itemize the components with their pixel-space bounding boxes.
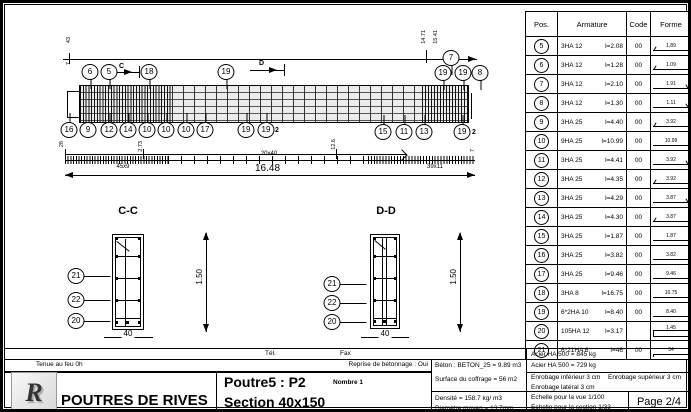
forme-label: 1.09 bbox=[665, 63, 677, 68]
bar-code bbox=[627, 322, 651, 340]
stirrup-outline bbox=[373, 237, 397, 326]
rebar-dot bbox=[394, 255, 397, 258]
bar-length: l=2.10 bbox=[605, 81, 623, 88]
bar-callout: 19 bbox=[238, 122, 255, 138]
forme-shape: 3.92 bbox=[652, 173, 690, 186]
bar-spec: 105HA 12 bbox=[561, 328, 590, 335]
forme-shape: 1.45 bbox=[652, 325, 690, 338]
rebar-dot bbox=[394, 237, 397, 240]
pos-badge: 16 bbox=[534, 248, 549, 263]
bar-callout: 18 bbox=[141, 64, 158, 80]
annotation-label: C bbox=[119, 63, 124, 70]
bar-code: 00 bbox=[627, 75, 651, 93]
logo-letter: R bbox=[25, 378, 42, 408]
forme-label: 3.87 bbox=[665, 215, 677, 220]
bar-callout: 16 bbox=[61, 122, 78, 138]
forme-label: 1.11 bbox=[665, 101, 676, 106]
annotation-label: D bbox=[259, 60, 264, 67]
table-row: 16 3HA 25 l=3.82 00 3.82 bbox=[526, 246, 691, 265]
forme-label: 1.91 bbox=[665, 82, 677, 87]
enrobage-superieur: Enrobage supérieur 3 cm bbox=[608, 375, 681, 382]
pos-badge: 8 bbox=[534, 96, 549, 111]
bar-callout: 19 bbox=[455, 65, 472, 81]
forme-label: 3.82 bbox=[665, 253, 677, 258]
line bbox=[216, 371, 217, 412]
bar-code: 00 bbox=[627, 94, 651, 112]
bar-callout: 5 bbox=[101, 64, 118, 80]
line bbox=[431, 359, 432, 412]
width-dim-label: 40 bbox=[379, 330, 392, 338]
table-row: 10 9HA 25 l=10.99 00 10.99 bbox=[526, 132, 691, 151]
forme-shape: 8.40 bbox=[652, 306, 690, 319]
bar-code: 00 bbox=[627, 132, 651, 150]
height-dim-line bbox=[460, 233, 461, 332]
forme-label: 9.46 bbox=[665, 272, 677, 277]
bar-callout: 10 bbox=[158, 122, 175, 138]
pos-badge: 5 bbox=[534, 39, 549, 54]
forme-label: 1.45 bbox=[665, 326, 677, 331]
forme-shape: 3.92 bbox=[652, 116, 690, 129]
line bbox=[284, 64, 285, 76]
bar-length: l=3.17 bbox=[605, 328, 623, 335]
stirrup-leg bbox=[116, 256, 140, 257]
bar-spec: 3HA 25 bbox=[561, 214, 582, 221]
bar-length: l=8.40 bbox=[605, 309, 623, 316]
bar-callout: 13 bbox=[416, 124, 433, 140]
dim-label: 7 bbox=[67, 62, 73, 65]
pos-badge: 6 bbox=[534, 58, 549, 73]
bar-code: 00 bbox=[627, 170, 651, 188]
forme-shape: 3.87 bbox=[652, 192, 690, 205]
bar-code: 00 bbox=[627, 208, 651, 226]
total-length-label: 16.48 bbox=[255, 164, 280, 174]
cut-arrow-icon bbox=[124, 69, 132, 75]
pos-badge: 13 bbox=[534, 191, 549, 206]
bar-callout: 19 bbox=[435, 65, 452, 81]
table-row: 12 3HA 25 l=4.35 00 3.92 bbox=[526, 170, 691, 189]
table-header: Pos. Armature Code Forme bbox=[526, 12, 691, 37]
forme-label: 3.92 bbox=[665, 158, 677, 163]
line bbox=[67, 91, 81, 92]
bar-spec: 3HA 12 bbox=[561, 43, 582, 50]
bar-callout: 19 bbox=[454, 124, 471, 140]
table-row: 15 3HA 25 l=1.87 00 1.87 bbox=[526, 227, 691, 246]
pos-badge: 18 bbox=[534, 286, 549, 301]
beton-info: Béton : BETON_25 = 9.89 m3 bbox=[435, 363, 521, 370]
dim-label: 43 bbox=[67, 37, 73, 43]
dim-label: 15.41 bbox=[434, 30, 440, 44]
pos-badge: 9 bbox=[534, 115, 549, 130]
bar-spec: 3HA 25 bbox=[561, 119, 582, 126]
bar-length: l=4.40 bbox=[605, 119, 623, 126]
table-row: 13 3HA 25 l=4.29 00 3.87 bbox=[526, 189, 691, 208]
forme-label: 16.75 bbox=[664, 291, 679, 296]
bar-callout: 19 bbox=[258, 122, 275, 138]
line bbox=[67, 91, 68, 118]
bar-length: l=1.30 bbox=[605, 100, 623, 107]
pos-badge: 20 bbox=[534, 324, 549, 339]
forme-shape: 1.87 bbox=[652, 230, 690, 243]
bar-line bbox=[382, 238, 383, 326]
bar-length: l=3.82 bbox=[605, 252, 623, 259]
rebar-dot bbox=[126, 321, 129, 324]
rebar-dot bbox=[394, 299, 397, 302]
pos-badge: 7 bbox=[534, 77, 549, 92]
bar-length: l=16.75 bbox=[601, 290, 623, 297]
table-row: 8 3HA 12 l=1.30 00 1.11 bbox=[526, 94, 691, 113]
rebar-dot bbox=[138, 299, 141, 302]
forme-label: 3.92 bbox=[665, 177, 677, 182]
bar-callout: 22 bbox=[324, 295, 341, 311]
spacing-ticks-right bbox=[368, 156, 475, 164]
forme-label: 3.92 bbox=[665, 120, 677, 125]
acier-info-2: Acier HA 500 = 729 kg bbox=[531, 363, 596, 370]
rebar-dot bbox=[115, 237, 118, 240]
line bbox=[63, 59, 477, 60]
enrobage-inferieur: Enrobage inférieur 3 cm bbox=[531, 375, 600, 382]
forme-shape: 1.11 bbox=[652, 97, 690, 110]
section-outline bbox=[112, 234, 144, 330]
rebar-dot bbox=[115, 321, 118, 324]
dim-label: 7 bbox=[471, 149, 477, 152]
line bbox=[250, 70, 284, 71]
tel-label: Tél. bbox=[265, 351, 276, 358]
line bbox=[65, 175, 475, 176]
rebar-dot bbox=[373, 255, 376, 258]
stirrup-hatch-dense-left bbox=[80, 86, 172, 122]
rebar-dot bbox=[373, 320, 376, 323]
line bbox=[5, 371, 431, 373]
bar-code: 00 bbox=[627, 56, 651, 74]
bar-length: l=10.99 bbox=[601, 138, 623, 145]
rebar-schedule-table: Pos. Armature Code Forme 5 3HA 12 l=2.08… bbox=[525, 11, 691, 360]
spacing-label: 20x40 bbox=[261, 151, 277, 157]
line bbox=[5, 348, 691, 349]
bar-callout: 22 bbox=[68, 292, 85, 308]
spacing-label: 45x9 bbox=[116, 164, 129, 170]
bar-callout: 10 bbox=[178, 122, 195, 138]
bar-callout: 19 bbox=[218, 64, 235, 80]
spacing-label: 39x11 bbox=[427, 164, 443, 170]
forme-label: 1.87 bbox=[665, 234, 677, 239]
dim-label: 14.71 bbox=[422, 30, 428, 44]
bar-callout: 8 bbox=[472, 65, 489, 81]
section-title: D-D bbox=[368, 205, 404, 217]
arrow-icon bbox=[467, 172, 475, 178]
bar-length: l=1.28 bbox=[605, 62, 623, 69]
bar-callout: 11 bbox=[396, 124, 413, 140]
bar-callout: 6 bbox=[82, 64, 99, 80]
bar-code: 00 bbox=[627, 113, 651, 131]
beam-name: Poutre5 : P2 bbox=[224, 374, 306, 390]
page-number: Page 2/4 bbox=[628, 392, 690, 412]
forme-shape: 3.87 bbox=[652, 211, 690, 224]
rebar-dot bbox=[373, 299, 376, 302]
rebar-dot bbox=[138, 277, 141, 280]
echelle-vue: Echelle pour la vue 1/100 bbox=[531, 395, 604, 402]
spacing-ticks-left bbox=[65, 156, 168, 164]
bar-code: 00 bbox=[627, 151, 651, 169]
forme-shape: 3.92 bbox=[652, 154, 690, 167]
rebar-dot bbox=[373, 277, 376, 280]
bar-code: 00 bbox=[627, 265, 651, 283]
bar-callout: 9 bbox=[80, 122, 97, 138]
bar-spec: 3HA 25 bbox=[561, 271, 582, 278]
rebar-dot bbox=[394, 277, 397, 280]
bar-spec: 6*2HA 10 bbox=[561, 309, 588, 316]
table-row: 19 6*2HA 10 l=8.40 00 8.40 bbox=[526, 303, 691, 322]
enrobage-lateral: Enrobage latéral 3 cm bbox=[531, 385, 595, 392]
stirrup-leg bbox=[374, 300, 396, 301]
tick bbox=[426, 50, 427, 63]
height-dim-label: 1.50 bbox=[450, 269, 458, 285]
fax-label: Fax bbox=[340, 351, 351, 358]
bar-spec: 3HA 12 bbox=[561, 100, 582, 107]
stirrup-leg bbox=[374, 318, 396, 319]
echelle-section: Echelle pour la section 1/33 bbox=[531, 405, 611, 412]
table-row: 14 3HA 25 l=4.30 00 3.87 bbox=[526, 208, 691, 227]
forme-shape: 10.99 bbox=[652, 135, 690, 148]
height-dim-line bbox=[206, 233, 207, 332]
bar-code: 00 bbox=[627, 303, 651, 321]
bar-callout: 21 bbox=[324, 276, 341, 292]
bar-length: l=4.29 bbox=[605, 195, 623, 202]
beam-body bbox=[79, 85, 469, 123]
stirrup-leg bbox=[116, 278, 140, 279]
arrow-icon bbox=[203, 232, 209, 240]
height-dim-label: 1.50 bbox=[196, 269, 204, 285]
rebar-dot bbox=[115, 277, 118, 280]
table-row: 5 3HA 12 l=2.08 00 1.89 bbox=[526, 37, 691, 56]
line bbox=[5, 359, 526, 360]
col-header-armature: Armature bbox=[558, 12, 627, 36]
arrow-icon bbox=[65, 172, 73, 178]
table-body: 5 3HA 12 l=2.08 00 1.89 6 3HA 12 bbox=[526, 37, 691, 359]
bar-spec: 3HA 12 bbox=[561, 62, 582, 69]
forme-shape: 1.89 bbox=[652, 40, 690, 53]
coffrage-info: Surface du coffrage = 56 m2 bbox=[435, 377, 517, 384]
bar-callout: 20 bbox=[324, 314, 341, 330]
reprise-note: Reprise de bétonnage : Oui bbox=[233, 362, 428, 369]
rebar-dot bbox=[138, 237, 141, 240]
col-header-pos: Pos. bbox=[526, 12, 558, 36]
bar-spec: 9HA 25 bbox=[561, 138, 582, 145]
bar-callout: 21 bbox=[68, 268, 85, 284]
pos-badge: 19 bbox=[534, 305, 549, 320]
bar-callout: 7 bbox=[443, 50, 460, 66]
section-outline bbox=[370, 234, 400, 329]
pos-badge: 11 bbox=[534, 153, 549, 168]
nombre-label: Nombre 1 bbox=[333, 380, 363, 387]
bar-length: l=1.87 bbox=[605, 233, 623, 240]
forme-shape: 3.82 bbox=[652, 249, 690, 262]
bar-spec: 3HA 25 bbox=[561, 233, 582, 240]
table-row: 7 3HA 12 l=2.10 00 1.91 bbox=[526, 75, 691, 94]
stirrup-leg bbox=[374, 256, 396, 257]
stirrup-hatch-mid bbox=[172, 86, 422, 122]
rebar-dot bbox=[115, 299, 118, 302]
dim-label: 28 bbox=[60, 141, 66, 147]
bar-code: 00 bbox=[627, 341, 651, 359]
bar-length: l=2.08 bbox=[605, 43, 623, 50]
stirrup-leg bbox=[374, 278, 396, 279]
bar-callout: 20 bbox=[68, 313, 85, 329]
forme-shape: 34 bbox=[652, 344, 690, 357]
rebar-dot bbox=[115, 255, 118, 258]
diametre-info: Diamètre moyen = 13.7mm bbox=[435, 406, 514, 412]
section-title: C-C bbox=[110, 205, 146, 217]
bar-length: l=4.35 bbox=[605, 176, 623, 183]
annotation-label: 2 bbox=[472, 129, 476, 136]
col-header-code: Code bbox=[627, 12, 651, 36]
beam-section-label: Section 40x150 bbox=[224, 394, 325, 410]
bar-code: 00 bbox=[627, 284, 651, 302]
rebar-dot bbox=[394, 320, 397, 323]
forme-label: 1.89 bbox=[665, 44, 677, 49]
table-row: 18 3HA 8 l=16.75 00 16.75 bbox=[526, 284, 691, 303]
forme-label: 8.40 bbox=[665, 310, 677, 315]
bar-callout: 17 bbox=[197, 122, 214, 138]
pos-badge: 10 bbox=[534, 134, 549, 149]
bar-length: l=9.46 bbox=[605, 271, 623, 278]
width-dim-label: 40 bbox=[122, 330, 135, 338]
bar-spec: 3HA 25 bbox=[561, 195, 582, 202]
annotation-label: 2 bbox=[275, 127, 279, 134]
line bbox=[65, 154, 407, 155]
project-title: POUTRES DE RIVES bbox=[61, 392, 208, 409]
rebar-dot bbox=[373, 237, 376, 240]
company-logo: R bbox=[11, 372, 57, 412]
table-row: 11 3HA 25 l=4.41 00 3.92 bbox=[526, 151, 691, 170]
pos-badge: 14 bbox=[534, 210, 549, 225]
stirrup-leg bbox=[116, 318, 140, 319]
bar-callout: 12 bbox=[101, 122, 118, 138]
arrow-icon bbox=[468, 56, 476, 62]
bar-line bbox=[386, 238, 387, 326]
fire-rating: Tenue au feu 0h bbox=[36, 362, 83, 369]
acier-info-1: Acier HA 500 = 845 kg bbox=[531, 352, 596, 359]
bar-spec: 3HA 8 bbox=[561, 290, 579, 297]
bar-code: 00 bbox=[627, 189, 651, 207]
line bbox=[526, 348, 527, 412]
cut-arrow-icon bbox=[269, 67, 277, 73]
bar-code: 00 bbox=[627, 227, 651, 245]
forme-shape: 1.09 bbox=[652, 59, 690, 72]
densite-info: Densité = 158.7 kg/ m3 bbox=[435, 396, 502, 403]
rebar-dot bbox=[383, 320, 386, 323]
bar-callout: 10 bbox=[139, 122, 156, 138]
bar-code: 00 bbox=[627, 37, 651, 55]
drawing-sheet: 651819197198 169121410101017191915111319… bbox=[0, 0, 691, 412]
pos-badge: 15 bbox=[534, 229, 549, 244]
bar-spec: 3HA 25 bbox=[561, 176, 582, 183]
bar-spec: 3HA 25 bbox=[561, 252, 582, 259]
forme-label: 3.87 bbox=[665, 196, 677, 201]
bar-callout: 14 bbox=[120, 122, 137, 138]
bar-line bbox=[125, 239, 126, 327]
col-header-forme: Forme bbox=[651, 12, 691, 36]
forme-shape: 16.75 bbox=[652, 287, 690, 300]
table-row: 9 3HA 25 l=4.40 00 3.92 bbox=[526, 113, 691, 132]
right-bar-hook bbox=[471, 93, 472, 119]
rebar-dot bbox=[138, 321, 141, 324]
table-row: 17 3HA 25 l=9.46 00 9.46 bbox=[526, 265, 691, 284]
pos-badge: 17 bbox=[534, 267, 549, 282]
bar-length: l=4.41 bbox=[605, 157, 623, 164]
rebar-dot bbox=[138, 255, 141, 258]
arrow-icon bbox=[457, 324, 463, 332]
forme-shape: 1.91 bbox=[652, 78, 690, 91]
stirrup-leg bbox=[116, 300, 140, 301]
pos-badge: 12 bbox=[534, 172, 549, 187]
arrow-icon bbox=[457, 232, 463, 240]
bar-spec: 3HA 12 bbox=[561, 81, 582, 88]
table-row: 20 105HA 12 l=3.17 1.45 bbox=[526, 322, 691, 341]
forme-label: 10.99 bbox=[664, 139, 679, 144]
arrow-icon bbox=[203, 324, 209, 332]
line bbox=[526, 372, 691, 373]
bar-spec: 3HA 25 bbox=[561, 157, 582, 164]
forme-shape: 9.46 bbox=[652, 268, 690, 281]
table-row: 6 3HA 12 l=1.28 00 1.09 bbox=[526, 56, 691, 75]
bar-code: 00 bbox=[627, 246, 651, 264]
bar-length: l=4.30 bbox=[605, 214, 623, 221]
bar-callout: 15 bbox=[375, 124, 392, 140]
